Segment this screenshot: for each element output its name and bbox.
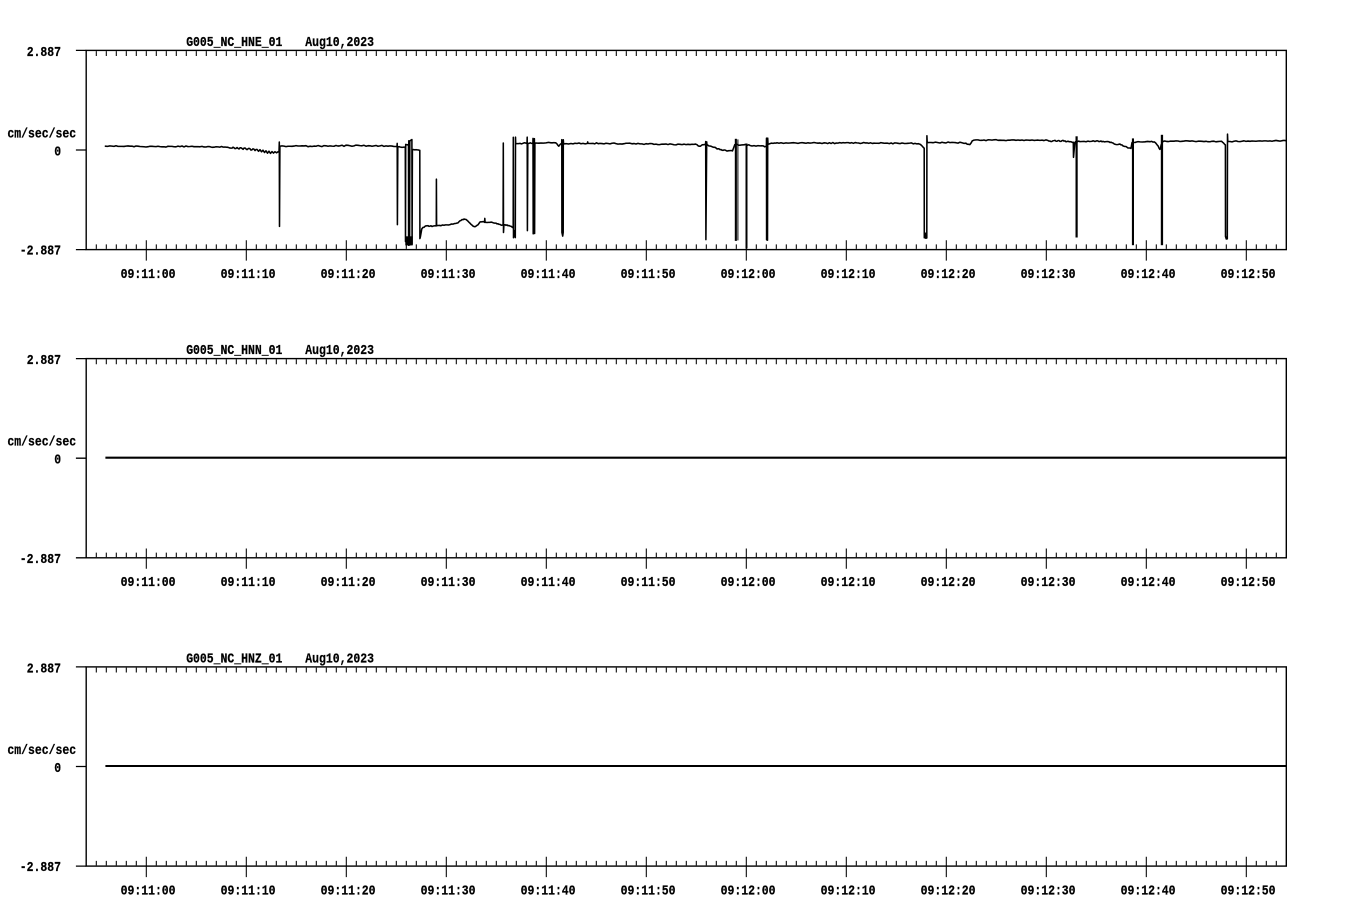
svg-text:cm/sec/sec: cm/sec/sec [7,435,76,451]
svg-text:Aug10,2023: Aug10,2023 [305,343,374,359]
svg-text:09:12:50: 09:12:50 [1221,575,1276,591]
svg-text:G005_NC_HNN_01: G005_NC_HNN_01 [186,343,282,359]
svg-text:09:11:00: 09:11:00 [121,883,176,899]
svg-text:09:12:20: 09:12:20 [921,883,976,899]
svg-text:09:12:30: 09:12:30 [1021,575,1076,591]
svg-text:09:12:30: 09:12:30 [1021,883,1076,899]
svg-text:-2.887: -2.887 [20,244,61,260]
svg-text:09:11:10: 09:11:10 [221,267,276,283]
svg-text:09:11:40: 09:11:40 [521,575,576,591]
svg-text:09:12:00: 09:12:00 [721,883,776,899]
svg-text:09:12:50: 09:12:50 [1221,267,1276,283]
svg-text:09:11:00: 09:11:00 [121,267,176,283]
svg-text:09:11:00: 09:11:00 [121,575,176,591]
svg-text:09:12:50: 09:12:50 [1221,883,1276,899]
svg-text:2.887: 2.887 [27,45,61,61]
svg-text:G005_NC_HNZ_01: G005_NC_HNZ_01 [186,652,282,668]
svg-text:09:11:10: 09:11:10 [221,575,276,591]
svg-text:09:12:10: 09:12:10 [821,883,876,899]
svg-text:09:11:20: 09:11:20 [321,883,376,899]
svg-text:09:11:10: 09:11:10 [221,883,276,899]
svg-text:09:11:50: 09:11:50 [621,267,676,283]
svg-text:2.887: 2.887 [27,353,61,369]
svg-text:09:12:00: 09:12:00 [721,575,776,591]
svg-text:09:12:40: 09:12:40 [1121,575,1176,591]
svg-text:09:11:50: 09:11:50 [621,883,676,899]
svg-text:09:11:40: 09:11:40 [521,883,576,899]
svg-text:-2.887: -2.887 [20,552,61,568]
svg-text:09:12:20: 09:12:20 [921,267,976,283]
svg-text:cm/sec/sec: cm/sec/sec [7,126,76,142]
svg-text:09:12:10: 09:12:10 [821,267,876,283]
svg-text:09:12:10: 09:12:10 [821,575,876,591]
svg-text:09:11:20: 09:11:20 [321,575,376,591]
svg-text:09:11:30: 09:11:30 [421,883,476,899]
svg-text:0: 0 [54,761,61,777]
svg-text:09:11:30: 09:11:30 [421,575,476,591]
svg-text:G005_NC_HNE_01: G005_NC_HNE_01 [186,35,282,51]
svg-text:09:11:20: 09:11:20 [321,267,376,283]
svg-text:0: 0 [54,453,61,469]
svg-text:-2.887: -2.887 [20,860,61,876]
svg-text:09:12:40: 09:12:40 [1121,883,1176,899]
svg-text:Aug10,2023: Aug10,2023 [305,652,374,668]
svg-text:0: 0 [54,144,61,160]
svg-text:09:12:40: 09:12:40 [1121,267,1176,283]
svg-text:09:11:50: 09:11:50 [621,575,676,591]
svg-text:09:11:40: 09:11:40 [521,267,576,283]
svg-text:09:12:30: 09:12:30 [1021,267,1076,283]
svg-text:09:12:20: 09:12:20 [921,575,976,591]
svg-text:09:12:00: 09:12:00 [721,267,776,283]
svg-text:2.887: 2.887 [27,662,61,678]
svg-text:09:11:30: 09:11:30 [421,267,476,283]
svg-text:cm/sec/sec: cm/sec/sec [7,743,76,759]
svg-text:Aug10,2023: Aug10,2023 [305,35,374,51]
